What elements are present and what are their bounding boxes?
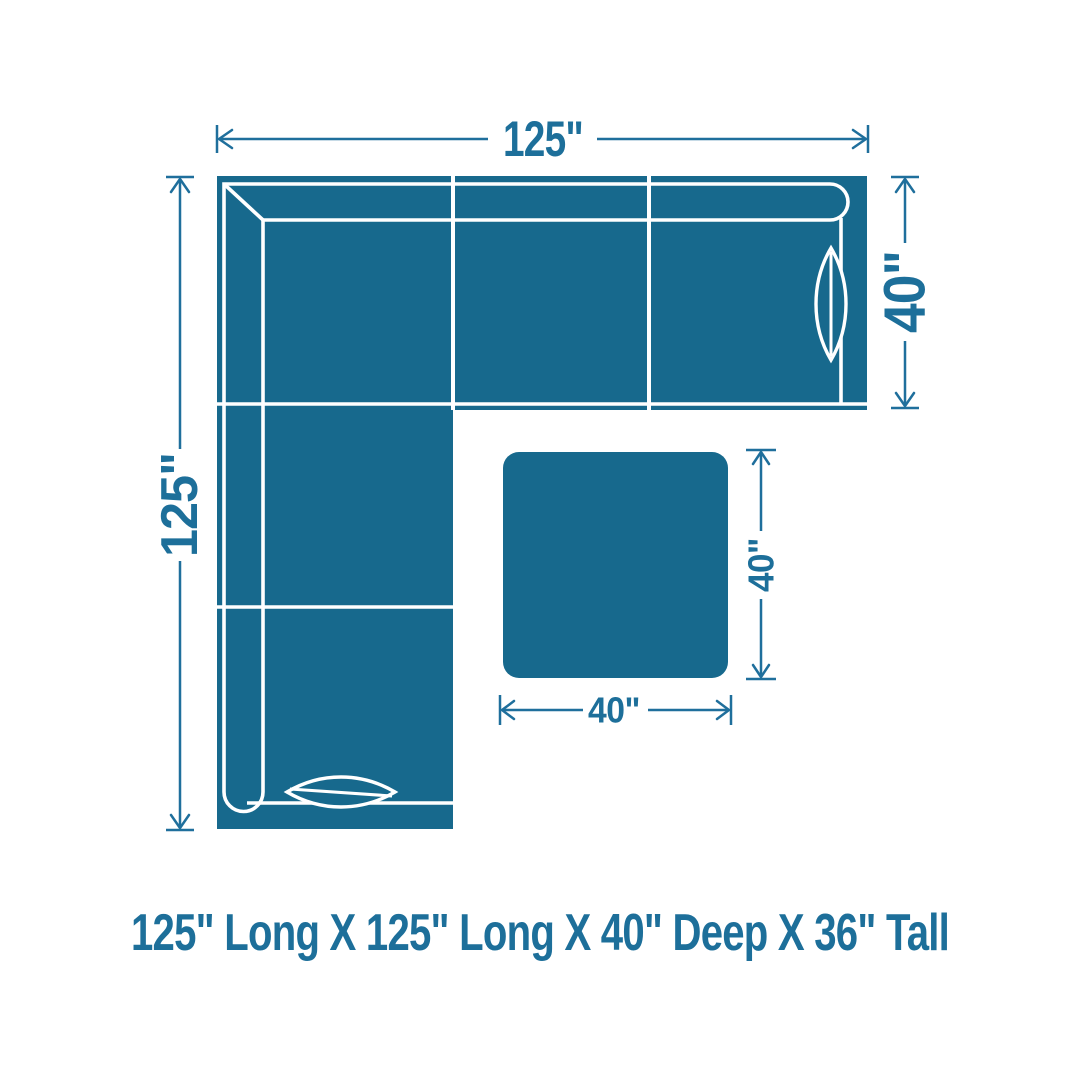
ottoman-width-dimension: 40" <box>500 690 731 731</box>
dimension-diagram-page: 125" 125" 40" <box>0 0 1080 1080</box>
ottoman-depth-label: 40" <box>741 538 782 592</box>
ottoman <box>503 452 728 678</box>
ottoman-width-label: 40" <box>588 690 640 731</box>
dimensions-caption: 125" Long X 125" Long X 40" Deep X 36" T… <box>131 904 949 962</box>
sofa-width-label: 125" <box>503 111 583 167</box>
ottoman-body <box>503 452 728 678</box>
sofa-dimension-diagram: 125" 125" 40" <box>0 0 1080 1080</box>
sofa-length-label: 125" <box>151 453 209 557</box>
sofa-width-dimension: 125" <box>217 111 868 167</box>
sofa-depth-dimension: 40" <box>873 177 938 408</box>
sofa-length-dimension: 125" <box>151 177 209 830</box>
sofa-depth-label: 40" <box>873 251 938 333</box>
ottoman-depth-dimension: 40" <box>741 450 782 679</box>
